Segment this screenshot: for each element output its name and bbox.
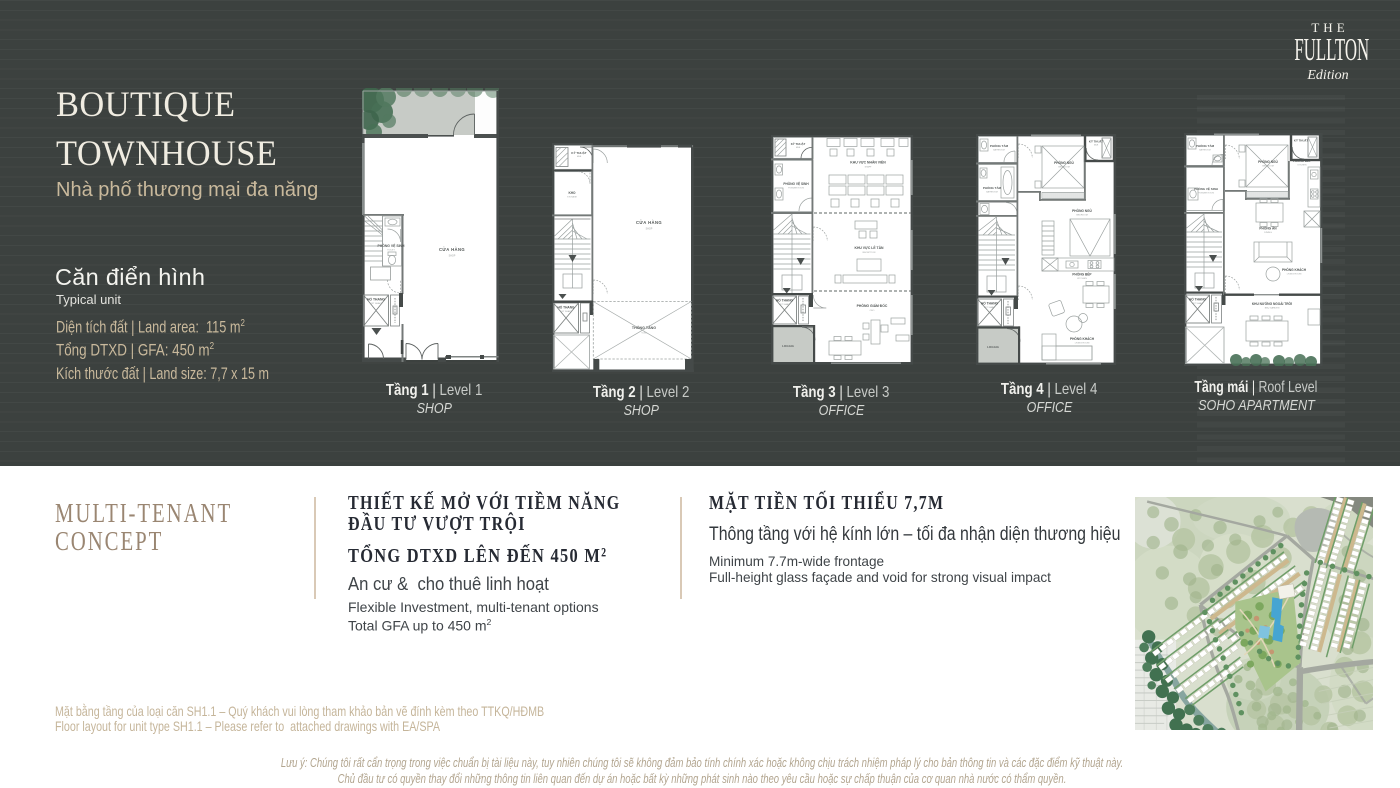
svg-text:STORAGE: STORAGE (567, 196, 577, 199)
svg-text:KỸ THUẬT: KỸ THUẬT (1294, 138, 1308, 143)
svg-text:BATHROOM: BATHROOM (993, 148, 1005, 151)
svg-text:SHOP: SHOP (646, 228, 653, 231)
svg-text:LOGGIA: LOGGIA (987, 345, 1000, 349)
svg-text:KHU NƯỚNG NGOÀI TRỜI: KHU NƯỚNG NGOÀI TRỜI (1252, 301, 1292, 306)
svg-text:PHÒNG VỆ SINH: PHÒNG VỆ SINH (783, 181, 809, 186)
svg-text:VOID: VOID (641, 332, 647, 334)
svg-text:SHOP: SHOP (449, 255, 456, 258)
svg-text:POWDER ROOM: POWDER ROOM (1198, 192, 1214, 194)
svg-text:KỸ THUẬT: KỸ THUẬT (571, 150, 586, 155)
svg-text:THÔNG TẦNG: THÔNG TẦNG (632, 325, 656, 330)
svg-text:BBQ GARDEN: BBQ GARDEN (1265, 307, 1280, 310)
svg-text:PHÒNG TẮM: PHÒNG TẮM (983, 185, 1002, 190)
svg-text:PHÒNG VỆ SINH: PHÒNG VỆ SINH (378, 243, 405, 248)
svg-text:LIFT SHAFT: LIFT SHAFT (984, 306, 996, 309)
svg-text:KỸ THUẬT: KỸ THUẬT (791, 141, 806, 146)
svg-text:KỸ THUẬT: KỸ THUẬT (1089, 139, 1103, 144)
svg-text:PHÒNG KHÁCH: PHÒNG KHÁCH (1282, 267, 1307, 272)
svg-text:M&E: M&E (796, 147, 801, 149)
svg-text:HỐ THANG: HỐ THANG (776, 298, 794, 303)
svg-text:KITCHEN: KITCHEN (1077, 278, 1087, 280)
svg-text:POWDER ROOM: POWDER ROOM (788, 188, 804, 190)
svg-text:PHÒNG NGỦ: PHÒNG NGỦ (1258, 159, 1278, 164)
svg-text:CỬA HÀNG: CỬA HÀNG (636, 220, 662, 225)
svg-text:PHÒNG NGỦ: PHÒNG NGỦ (1072, 208, 1092, 213)
svg-text:LIFT SHAFT: LIFT SHAFT (370, 302, 383, 305)
svg-text:LIFT SHAFT: LIFT SHAFT (779, 303, 791, 306)
svg-text:PHÒNG VỆ SINH: PHÒNG VỆ SINH (1194, 186, 1218, 191)
svg-text:KHU VỰC LỄ TÂN: KHU VỰC LỄ TÂN (855, 245, 885, 250)
svg-text:CỬA HÀNG: CỬA HÀNG (439, 247, 465, 252)
svg-text:BEDROOM: BEDROOM (1058, 167, 1069, 169)
svg-text:LIFT SHAFT: LIFT SHAFT (560, 310, 572, 313)
svg-text:PHÒNG TẮM: PHÒNG TẮM (990, 143, 1009, 148)
svg-text:BATHROOM: BATHROOM (986, 190, 998, 193)
svg-text:HỐ THANG: HỐ THANG (981, 301, 999, 306)
svg-text:KHO: KHO (568, 191, 576, 195)
svg-text:LIVING ROOM: LIVING ROOM (1287, 274, 1302, 276)
svg-text:KHU VỰC NHÂN VIÊN: KHU VỰC NHÂN VIÊN (850, 160, 886, 165)
svg-text:PHÒNG ĂN: PHÒNG ĂN (1259, 226, 1277, 231)
svg-text:BATHROOM: BATHROOM (1199, 148, 1211, 151)
svg-text:BEDROOM: BEDROOM (1262, 166, 1273, 168)
svg-text:M&E: M&E (577, 156, 582, 158)
svg-text:RECEPTION: RECEPTION (863, 252, 876, 254)
svg-text:PHÒNG BẾP: PHÒNG BẾP (1293, 158, 1311, 163)
svg-text:LIFT SHAFT: LIFT SHAFT (1192, 302, 1204, 305)
svg-text:PHÒNG NGỦ: PHÒNG NGỦ (1054, 160, 1074, 165)
svg-text:LIVING ROOM: LIVING ROOM (1075, 343, 1090, 345)
svg-text:PHÒNG GIÁM ĐỐC: PHÒNG GIÁM ĐỐC (857, 303, 888, 308)
svg-text:HỐ THANG: HỐ THANG (1189, 297, 1207, 302)
svg-text:DINING: DINING (1264, 232, 1272, 234)
svg-text:BEDROOM: BEDROOM (1076, 215, 1087, 217)
svg-text:HỐ THANG: HỐ THANG (558, 305, 576, 310)
svg-text:KITCHEN: KITCHEN (1298, 164, 1307, 166)
svg-text:PHÒNG KHÁCH: PHÒNG KHÁCH (1070, 336, 1095, 341)
svg-text:CEO: CEO (870, 310, 875, 312)
svg-text:M&E: M&E (1094, 145, 1099, 147)
svg-text:STAFF: STAFF (865, 165, 872, 168)
svg-text:TOILET: TOILET (387, 250, 395, 252)
svg-text:PHÒNG BẾP: PHÒNG BẾP (1072, 272, 1092, 277)
svg-text:HỐ THANG: HỐ THANG (367, 297, 385, 302)
svg-text:LOGGIA: LOGGIA (782, 344, 795, 348)
svg-text:PHÒNG TẮM: PHÒNG TẮM (1196, 143, 1215, 148)
